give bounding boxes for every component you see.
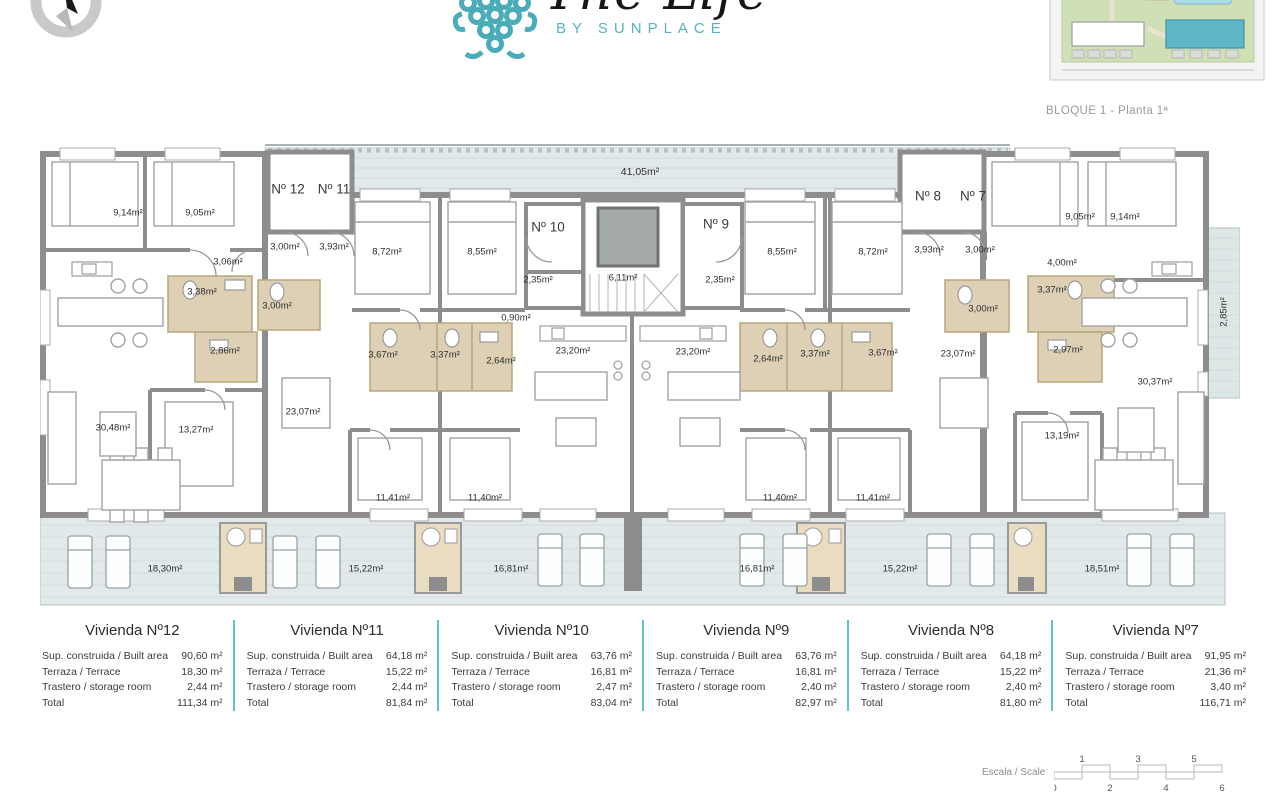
area-row-label: Trastero / storage room [247, 680, 356, 696]
unit-area-row: Total81,80 m² [861, 696, 1042, 712]
scale-number: 3 [1135, 754, 1140, 765]
site-plan-thumbnail [1048, 0, 1272, 90]
floor-caption: BLOQUE 1 - Planta 1ª [1046, 105, 1168, 117]
unit-summary-table: Vivienda Nº7Sup. construida / Built area… [1051, 620, 1256, 711]
scale-number: 1 [1079, 754, 1084, 765]
unit-area-row: Total81,84 m² [247, 696, 428, 712]
unit-area-row: Terraza / Terrace16,81 m² [656, 665, 837, 681]
unit-area-row: Total83,04 m² [451, 696, 632, 712]
floor-plan: Nº 12Nº 11Nº 10Nº 9Nº 8Nº 741,05m²9,14m²… [40, 140, 1240, 612]
area-row-value: 63,76 m² [795, 649, 836, 665]
area-row-value: 2,40 m² [1006, 680, 1042, 696]
scale-number: 6 [1219, 783, 1224, 794]
area-row-label: Terraza / Terrace [656, 665, 735, 681]
area-row-label: Sup. construida / Built area [42, 649, 168, 665]
area-row-value: 116,71 m² [1200, 696, 1247, 712]
unit-area-row: Total82,97 m² [656, 696, 837, 712]
area-row-value: 15,22 m² [386, 665, 427, 681]
scale-number: 5 [1191, 754, 1196, 765]
area-row-value: 2,47 m² [596, 680, 632, 696]
unit-area-row: Trastero / storage room3,40 m² [1065, 680, 1246, 696]
area-row-value: 81,84 m² [386, 696, 427, 712]
unit-summary-table: Vivienda Nº11Sup. construida / Built are… [233, 620, 438, 711]
unit-summary-table: Vivienda Nº10Sup. construida / Built are… [437, 620, 642, 711]
logo-subtext: BY SUNPLACE [556, 20, 727, 37]
unit-summary-table: Vivienda Nº8Sup. construida / Built area… [847, 620, 1052, 711]
unit-title: Vivienda Nº8 [861, 622, 1042, 639]
area-row-value: 21,36 m² [1205, 665, 1246, 681]
area-row-value: 63,76 m² [591, 649, 632, 665]
area-row-label: Total [656, 696, 678, 712]
scale-number: 0 [1054, 783, 1057, 794]
logo: The Life BY SUNPLACE [452, 0, 782, 64]
unit-area-row: Sup. construida / Built area64,18 m² [861, 649, 1042, 665]
logo-text: The Life [544, 0, 769, 22]
unit-area-row: Total116,71 m² [1065, 696, 1246, 712]
area-row-label: Total [247, 696, 269, 712]
unit-area-row: Sup. construida / Built area63,76 m² [656, 649, 837, 665]
area-row-label: Sup. construida / Built area [861, 649, 987, 665]
area-row-value: 83,04 m² [591, 696, 632, 712]
area-row-value: 64,18 m² [386, 649, 427, 665]
area-row-label: Total [42, 696, 64, 712]
unit-area-row: Sup. construida / Built area64,18 m² [247, 649, 428, 665]
unit-area-row: Trastero / storage room2,47 m² [451, 680, 632, 696]
area-row-label: Total [1065, 696, 1087, 712]
unit-area-row: Sup. construida / Built area90,60 m² [42, 649, 223, 665]
area-row-label: Total [861, 696, 883, 712]
unit-title: Vivienda Nº11 [247, 622, 428, 639]
unit-area-row: Terraza / Terrace15,22 m² [247, 665, 428, 681]
area-row-label: Terraza / Terrace [247, 665, 326, 681]
unit-area-row: Terraza / Terrace21,36 m² [1065, 665, 1246, 681]
area-row-label: Terraza / Terrace [451, 665, 530, 681]
unit-area-row: Trastero / storage room2,40 m² [656, 680, 837, 696]
area-row-label: Sup. construida / Built area [1065, 649, 1191, 665]
area-row-label: Trastero / storage room [656, 680, 765, 696]
area-row-value: 2,44 m² [187, 680, 223, 696]
area-row-label: Terraza / Terrace [42, 665, 121, 681]
scale-bar: Escala / Scale 1350246 [982, 754, 1272, 798]
unit-area-row: Terraza / Terrace18,30 m² [42, 665, 223, 681]
unit-area-row: Trastero / storage room2,40 m² [861, 680, 1042, 696]
unit-summary-table: Vivienda Nº9Sup. construida / Built area… [642, 620, 847, 711]
scale-number: 2 [1107, 783, 1112, 794]
page: { "header": { "logo_text": "The Life", "… [0, 0, 1280, 800]
area-row-value: 18,30 m² [181, 665, 222, 681]
scale-graphic: 1350246 [1054, 754, 1254, 798]
elevator [598, 208, 658, 266]
area-row-value: 15,22 m² [1000, 665, 1041, 681]
logo-ornament-icon [452, 0, 538, 62]
area-row-label: Trastero / storage room [451, 680, 560, 696]
area-row-value: 3,40 m² [1210, 680, 1246, 696]
area-row-label: Trastero / storage room [861, 680, 970, 696]
unit-title: Vivienda Nº7 [1065, 622, 1246, 639]
area-row-value: 16,81 m² [591, 665, 632, 681]
area-row-label: Sup. construida / Built area [451, 649, 577, 665]
area-row-value: 16,81 m² [795, 665, 836, 681]
area-row-value: 2,44 m² [392, 680, 428, 696]
unit-area-row: Trastero / storage room2,44 m² [247, 680, 428, 696]
unit-area-row: Terraza / Terrace15,22 m² [861, 665, 1042, 681]
area-row-value: 91,95 m² [1205, 649, 1246, 665]
area-row-label: Trastero / storage room [1065, 680, 1174, 696]
area-row-value: 2,40 m² [801, 680, 837, 696]
unit-area-row: Terraza / Terrace16,81 m² [451, 665, 632, 681]
area-row-label: Terraza / Terrace [861, 665, 940, 681]
area-row-label: Trastero / storage room [42, 680, 151, 696]
scale-number: 4 [1163, 783, 1168, 794]
unit-area-row: Total111,34 m² [42, 696, 223, 712]
area-row-label: Total [451, 696, 473, 712]
area-row-label: Sup. construida / Built area [247, 649, 373, 665]
area-row-value: 81,80 m² [1000, 696, 1041, 712]
unit-title: Vivienda Nº10 [451, 622, 632, 639]
unit-title: Vivienda Nº9 [656, 622, 837, 639]
area-row-value: 111,34 m² [177, 696, 223, 712]
scale-label: Escala / Scale [982, 767, 1045, 778]
area-row-label: Terraza / Terrace [1065, 665, 1144, 681]
area-row-value: 90,60 m² [181, 649, 222, 665]
unit-area-row: Sup. construida / Built area63,76 m² [451, 649, 632, 665]
unit-summary-table: Vivienda Nº12Sup. construida / Built are… [30, 620, 233, 711]
area-row-value: 64,18 m² [1000, 649, 1041, 665]
unit-area-row: Sup. construida / Built area91,95 m² [1065, 649, 1246, 665]
compass-icon [28, 0, 106, 64]
unit-area-row: Trastero / storage room2,44 m² [42, 680, 223, 696]
area-row-label: Sup. construida / Built area [656, 649, 782, 665]
area-row-value: 82,97 m² [795, 696, 836, 712]
unit-summary-tables: Vivienda Nº12Sup. construida / Built are… [30, 620, 1256, 711]
unit-title: Vivienda Nº12 [42, 622, 223, 639]
